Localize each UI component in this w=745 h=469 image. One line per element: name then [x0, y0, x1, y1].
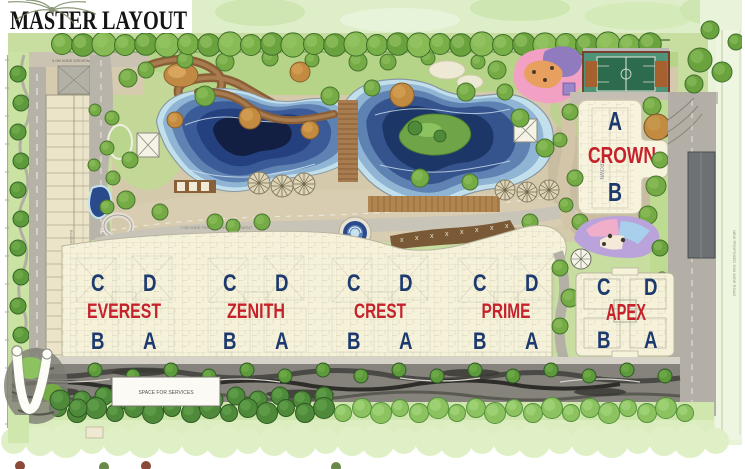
svg-text:A: A: [143, 328, 157, 355]
svg-text:x: x: [460, 229, 464, 236]
svg-text:C: C: [597, 274, 611, 301]
svg-text:D: D: [644, 274, 658, 301]
svg-text:NEW PROPOSED 30M WIDE ROAD: NEW PROPOSED 30M WIDE ROAD: [732, 230, 737, 296]
svg-text:B: B: [597, 327, 611, 354]
svg-text:A: A: [525, 328, 539, 355]
svg-text:A: A: [399, 328, 413, 355]
svg-text:B: B: [608, 177, 622, 207]
svg-text:9.0M WIDE DRIVEWAY: 9.0M WIDE DRIVEWAY: [52, 58, 95, 63]
svg-text:C: C: [473, 270, 487, 297]
svg-text:D: D: [525, 270, 539, 297]
svg-text:C: C: [347, 270, 361, 297]
svg-text:SPACE FOR SERVICES: SPACE FOR SERVICES: [138, 390, 194, 396]
svg-text:APEX: APEX: [606, 299, 646, 325]
svg-text:ZENITH: ZENITH: [227, 300, 285, 323]
svg-text:x: x: [505, 223, 509, 230]
svg-text:x: x: [475, 227, 479, 234]
svg-text:x: x: [400, 237, 404, 244]
svg-text:A: A: [275, 328, 289, 355]
svg-text:D: D: [143, 270, 157, 297]
svg-text:D: D: [399, 270, 413, 297]
svg-text:x: x: [430, 233, 434, 240]
svg-text:D: D: [275, 270, 289, 297]
svg-text:x: x: [415, 235, 419, 242]
svg-text:C: C: [91, 270, 105, 297]
svg-text:B: B: [347, 328, 361, 355]
svg-text:EVEREST: EVEREST: [87, 300, 161, 323]
svg-text:A: A: [608, 106, 622, 136]
svg-text:B: B: [223, 328, 237, 355]
svg-text:CROWN: CROWN: [588, 142, 656, 168]
svg-text:x: x: [445, 231, 449, 238]
svg-text:A: A: [644, 327, 658, 354]
svg-text:B: B: [473, 328, 487, 355]
svg-text:C: C: [223, 270, 237, 297]
svg-text:PRIME: PRIME: [482, 300, 531, 323]
svg-text:B: B: [91, 328, 105, 355]
svg-text:x: x: [490, 225, 494, 232]
svg-text:CREST: CREST: [354, 300, 406, 323]
